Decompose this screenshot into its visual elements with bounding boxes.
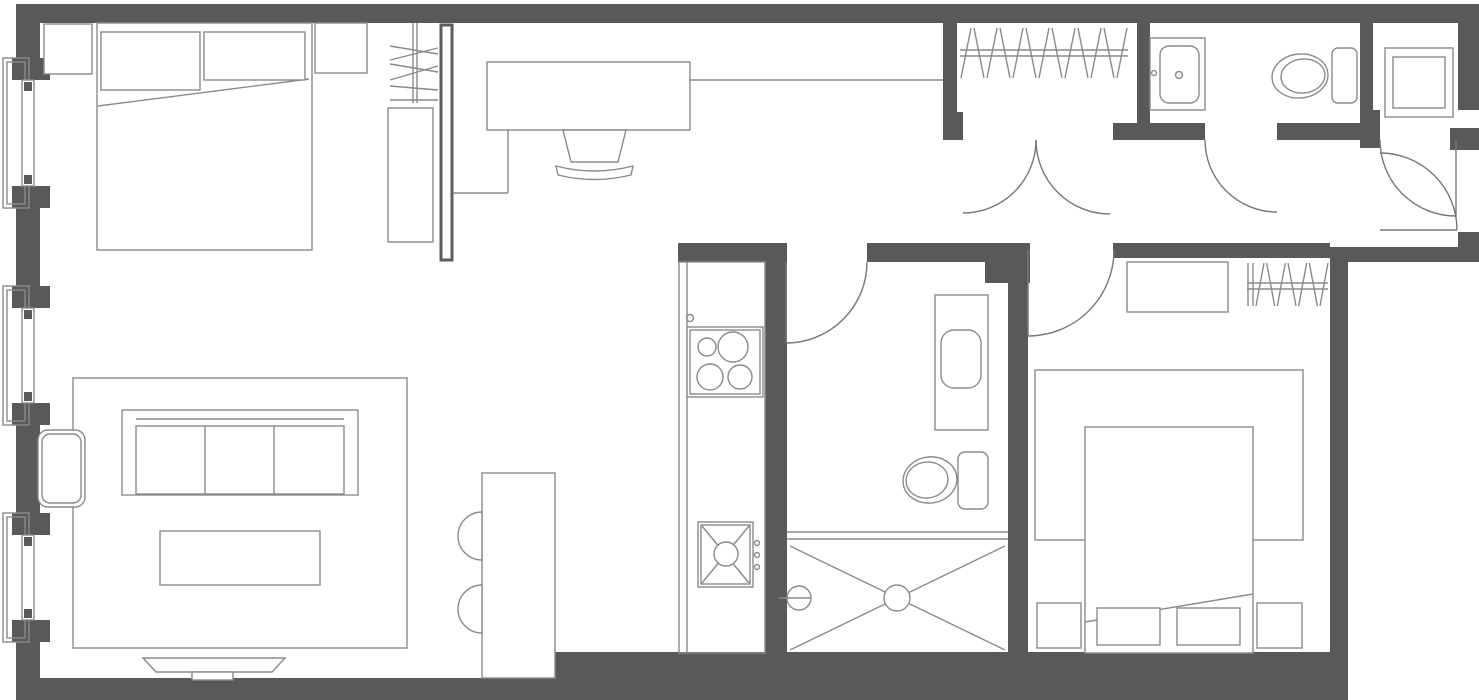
closet-hangers-line-7 (1039, 28, 1049, 78)
toilet1-bowl-inner (1279, 57, 1326, 95)
entry-unit-outer (1385, 48, 1453, 117)
dining-chair-1 (458, 512, 482, 560)
stove-outer (687, 327, 763, 397)
wardrobe-hanger-line-5 (390, 86, 438, 90)
desk (487, 62, 690, 130)
closet-hangers-line-8 (1052, 28, 1062, 78)
bedroom2-door-arc (1028, 250, 1114, 336)
bath2-door-arc (786, 262, 867, 343)
toilet2-tank (958, 452, 988, 509)
window1-handle-bottom (24, 175, 32, 184)
closet2-hangers-line-1 (1256, 263, 1264, 306)
tv-screen (143, 658, 285, 672)
closet-hangers-line-4 (1000, 28, 1010, 78)
closet2-hangers-line-7 (1320, 263, 1328, 306)
floor-plan (0, 0, 1479, 700)
wall-left-pier-3 (12, 286, 50, 308)
nightstand2-left (1037, 603, 1081, 648)
wall-right-upper (1458, 4, 1479, 110)
wall-pillar-closet-foot (943, 112, 963, 140)
closet-hangers-line-13 (1117, 28, 1127, 78)
closet-hangers-line-1 (961, 28, 971, 78)
wall-bath2-bed2 (1008, 262, 1028, 653)
closet-hangers-line-12 (1104, 28, 1114, 78)
nightstand1-right (315, 23, 367, 73)
wall-top (16, 4, 1479, 23)
closet-hangers-line-10 (1078, 28, 1088, 78)
closet-door-right-arc (1036, 140, 1110, 214)
closet-hangers-line-9 (1065, 28, 1075, 78)
sofa-outer (122, 410, 358, 495)
closet-hangers-line-2 (974, 28, 984, 78)
wall-left-upper (16, 4, 40, 58)
wall-bath1-bottom-left (1113, 123, 1205, 140)
bath1-door-arc (1205, 140, 1277, 212)
wall-kitchen-bath2 (765, 262, 787, 653)
window2-sash (22, 308, 34, 403)
wardrobe-sliding-panel (441, 25, 452, 260)
window1-handle-top (24, 82, 32, 91)
wall-bottom-right (555, 652, 1348, 700)
wall-bedroom2-right (1330, 247, 1348, 653)
closet-hangers-line-3 (987, 28, 997, 78)
wall-entry-pier-left (1360, 110, 1380, 148)
wall-bath1-bottom-right (1277, 123, 1370, 140)
coffee-table (160, 531, 320, 585)
wall-bottom-left (16, 678, 555, 700)
window3-handle-bottom (24, 609, 32, 618)
bed1-pillow-left (101, 32, 200, 90)
closet-hangers-line-5 (1013, 28, 1023, 78)
desk-chair-seat (563, 130, 626, 162)
window3-sash (22, 535, 34, 620)
entry-door1-arc (1380, 140, 1456, 216)
entry-door2-arc (1380, 153, 1457, 230)
shower-drain (884, 585, 910, 611)
kitchen-sink-drain (714, 542, 738, 566)
kitchen-sink-knob-1 (755, 541, 760, 546)
closet-hangers-line-11 (1091, 28, 1101, 78)
closet2-hangers-line-5 (1299, 263, 1307, 306)
closet2-hangers-line-4 (1288, 263, 1296, 306)
wall-kitchen-top (678, 243, 787, 262)
window2-handle-top (24, 310, 32, 319)
bed2-pillow-right (1177, 608, 1240, 645)
window1-sash (22, 80, 34, 186)
dining-chair-2 (458, 585, 482, 633)
bedroom2-dresser (1127, 262, 1228, 312)
wall-left-mid-1 (16, 208, 40, 286)
window3-handle-top (24, 537, 32, 546)
desk-chair-back (556, 166, 633, 180)
dining-table (482, 473, 555, 678)
window2-handle-bottom (24, 392, 32, 401)
wall-bath1-entry-divider (1360, 23, 1373, 123)
nightstand1-left (44, 24, 92, 74)
nightstand2-right (1257, 603, 1302, 648)
wall-left-pier-5 (12, 513, 50, 535)
toilet1-tank (1332, 48, 1357, 103)
washing-machine-outer (935, 295, 988, 430)
bed2-pillow-left (1097, 608, 1160, 645)
closet-door-left-arc (963, 140, 1036, 213)
kitchen-sink-knob-3 (755, 565, 760, 570)
wall-left-pier-6 (12, 620, 50, 642)
bed1-pillow-right (204, 32, 305, 80)
closet2-hangers-line-2 (1267, 263, 1275, 306)
tv-stand (192, 672, 233, 680)
wall-corridor-right (1330, 247, 1479, 262)
wall-pillar-closet-bath (1137, 23, 1150, 125)
closet2-hangers-line-6 (1309, 263, 1317, 306)
wardrobe-cabinet (388, 108, 433, 242)
wall-corridor-bed2 (1113, 243, 1330, 258)
wall-pillar-closet-left (943, 23, 957, 118)
kitchen-sink-knob-2 (755, 553, 760, 558)
wall-left-mid-2 (16, 425, 40, 513)
side-table-outer (38, 430, 85, 507)
closet-hangers-line-6 (1026, 28, 1036, 78)
wall-left-pier-4 (12, 403, 50, 425)
wall-entry-pier-right (1450, 128, 1479, 150)
closet2-hangers-line-3 (1277, 263, 1285, 306)
